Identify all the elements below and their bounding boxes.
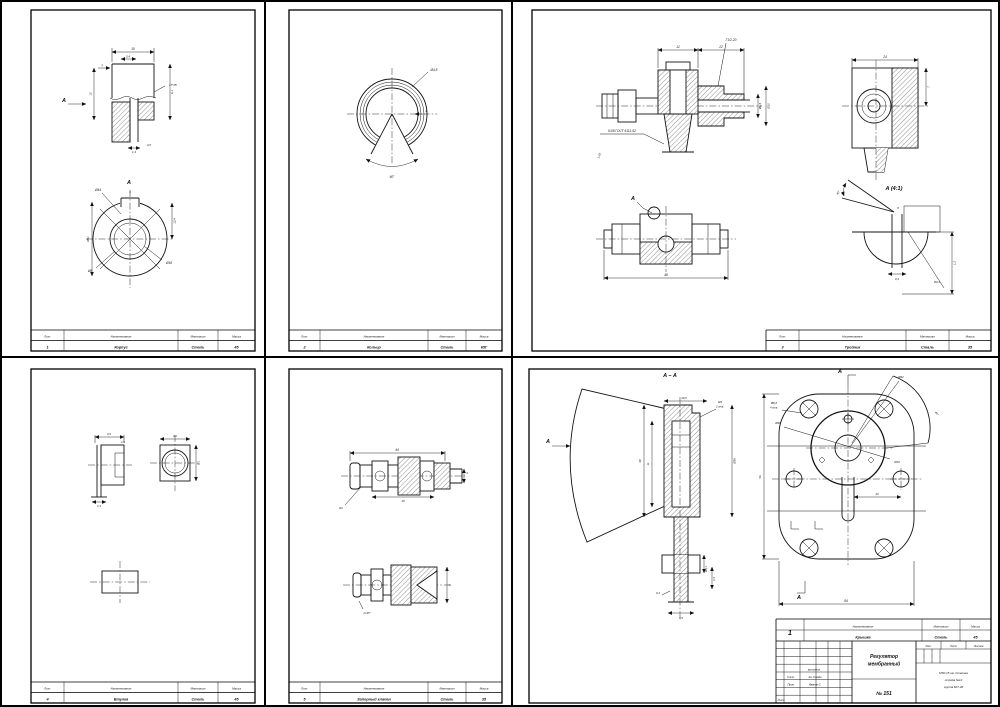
- tb-left-grid: выполнил Сост. Ан. Семён Пров. Иванов С.…: [776, 641, 852, 703]
- tb-header-name: Наименование: [853, 625, 874, 629]
- tb-cell-label: выполнил: [808, 669, 821, 672]
- tb-list-label: Лист: [777, 698, 786, 702]
- dim-label: Ø30: [774, 421, 781, 425]
- dim-label: 0,4: [656, 591, 660, 595]
- tb-header-pos: Лит.: [300, 686, 308, 690]
- tb-header-mass: Масса: [232, 334, 241, 338]
- sheet4-title-block: Лит. Наименование Материал Масса 4 Втулк…: [31, 682, 255, 703]
- dim-label: Ø18: [165, 261, 172, 265]
- tb-org-line2: отряда №12: [945, 678, 963, 682]
- sheet6-plate-view: 45° Ø6,6 4 отв. Ø32 Ø30 Ø10 56 84 23 A: [758, 369, 940, 606]
- section-arrow-label: A: [61, 98, 66, 104]
- tb-part-name: Тройник: [845, 346, 862, 350]
- tb-header-pos: Лит.: [300, 334, 308, 338]
- dim-label: 45°: [934, 411, 940, 417]
- dim-label: 48: [664, 273, 668, 277]
- section-label: A – A: [662, 373, 677, 379]
- tb-header-name: Наименование: [842, 334, 863, 338]
- sheet1-title-block: Лит. Наименование Материал Масса 1 Корпу…: [31, 330, 255, 351]
- dim-label: 24: [882, 55, 887, 59]
- sheet4-profile-view: 4,5 1,5 1,3: [88, 432, 132, 508]
- hole-count-label: 2 отв.: [715, 405, 724, 409]
- tb-mass: 65Г: [481, 346, 488, 350]
- sheet2-ring-view: 60° Ø4,5 3: [347, 68, 438, 179]
- thread-label: М3: [718, 400, 722, 404]
- sheet4-front-view: 3,2 8,1: [150, 434, 201, 491]
- tb-header-name: Наименование: [111, 686, 132, 690]
- sheet2-title-block: Лит. Наименование Материал Масса 2 Кольц…: [289, 330, 502, 351]
- dim-label: 3,2: [173, 434, 177, 438]
- dim-label: Ø4,5: [430, 68, 438, 72]
- dim-label: 1,25: [596, 152, 602, 159]
- sheet-4-vtulka: 4,5 1,5 1,3 3,2 8,1: [2, 357, 264, 707]
- sheet-2-koltso: 60° Ø4,5 3 Лит. Наименование Материал Ма…: [265, 2, 511, 356]
- tb-pos: 4: [45, 698, 49, 702]
- dim-label: 1×45°: [363, 611, 371, 615]
- dim-label: 8: [897, 206, 899, 210]
- dim-label: 7: [927, 86, 931, 88]
- dim-label: 4: [466, 471, 468, 475]
- dim-label: Ø10: [767, 103, 771, 110]
- tb-right-block: Лит. Лист Листов МТИ 15 им. Сталина отря…: [916, 641, 991, 689]
- tb-header-material: Материал: [920, 334, 935, 338]
- tb-org-line1: МТИ 15 им. Сталина: [939, 671, 968, 675]
- dim-label: 84: [844, 599, 848, 603]
- hole-callout: Ø6,6: [770, 401, 778, 405]
- dim-label: 12: [89, 92, 93, 96]
- dim-label: 6,1: [170, 90, 174, 94]
- dim-label: Ø6,4: [758, 103, 762, 111]
- tb-header-material: Материал: [439, 334, 454, 338]
- sheet4-bottom-view: [90, 561, 150, 603]
- section-arrow-label: A: [837, 369, 842, 375]
- sheet-6-regulator: A – A A 10,5 М3 2 отв. Ø3: [512, 357, 1000, 707]
- tb-part-name: Втулка: [114, 698, 129, 702]
- tb-part-name: Кольцо: [367, 346, 381, 350]
- dim-label: Ø44: [94, 188, 101, 192]
- tb-mass: 35: [968, 346, 973, 350]
- tb-role-label: Пров.: [787, 683, 794, 687]
- tb-header-mass: Масса: [971, 625, 980, 629]
- tb-header-name: Наименование: [111, 334, 132, 338]
- dim-label: 12: [676, 45, 680, 49]
- tb-header-pos: Лит.: [43, 334, 51, 338]
- tb-part-name: Запорный клапан: [357, 698, 391, 702]
- dim-label: Ø8: [87, 269, 92, 273]
- tb-material: Сталь: [192, 698, 206, 702]
- sheet3-title-block: Лит. Наименование Материал Масса 3 Тройн…: [766, 330, 991, 351]
- corner-hole: [800, 400, 818, 418]
- dim-label: 8,1: [197, 461, 201, 465]
- dim-label: 12,4: [173, 218, 177, 224]
- tb-material: Сталь: [935, 636, 949, 640]
- thread-label: Г1/2-20: [726, 38, 737, 42]
- dim-label: 1,2: [953, 261, 957, 265]
- tb-sheet-label: Лист: [949, 644, 958, 648]
- tb-material: Сталь: [921, 346, 935, 350]
- tb-material: Сталь: [441, 698, 455, 702]
- sheet-1-korpus: 10 5,4 1 1,3 4,5 17°45' 6,1 12: [2, 2, 264, 356]
- dim-label: 22: [718, 45, 723, 49]
- drawing-title-line2: мембранный: [868, 661, 900, 668]
- tb-header-name: Наименование: [364, 334, 385, 338]
- sheet-5-klapan: 44 4 18 R2: [265, 357, 511, 707]
- tb-part-name: Крышка: [855, 636, 870, 640]
- dim-label: Ø10: [893, 460, 900, 464]
- dim-label: Ø38: [733, 458, 737, 465]
- dim-label: 1,3: [97, 504, 101, 508]
- sheet1-top-view: 10 5,4 1 1,3 4,5 17°45' 6,1 12: [61, 47, 177, 154]
- dim-label: 6: [448, 584, 452, 586]
- view-label: A: [126, 180, 131, 186]
- dim-label: R2: [339, 506, 343, 510]
- tb-mass: 45: [972, 636, 978, 640]
- tb-pos: 1: [788, 630, 792, 637]
- dim-label: 40°: [835, 189, 841, 195]
- sheet1-bottom-view: A 4 Ø44 Ø8 Ø18 Ø51 12,4: [86, 180, 177, 288]
- dim-label: 10,5: [681, 396, 687, 400]
- drawing-number: № 151: [876, 691, 892, 697]
- dim-label: 17°45': [169, 83, 177, 87]
- tb-pos: 1: [46, 346, 48, 350]
- tb-title-cell: Регулятор мембранный № 151: [852, 654, 916, 697]
- dim-label: 1,5: [121, 440, 125, 444]
- sheet6-main-title-block: 1 Наименование Материал Масса Крышка Ста…: [776, 619, 991, 703]
- tb-pos: 2: [302, 346, 306, 350]
- sheet-3-troynik: 12 22 Г1/2-20 Ø6,4 Ø10 К1/8 ГОСТ 6111-52…: [512, 2, 1000, 356]
- tb-lit-label: Лит.: [924, 644, 932, 648]
- dim-label: R0,4: [934, 280, 940, 284]
- tb-header-material: Материал: [439, 686, 454, 690]
- dim-label: 10: [131, 47, 135, 51]
- dim-label: 4,5: [147, 143, 151, 147]
- sheet5-title-block: Лит. Наименование Материал Масса 5 Запор…: [289, 682, 502, 703]
- tb-mass: 45: [233, 346, 239, 350]
- view-label: A: [630, 196, 635, 202]
- tb-pos: 5: [303, 698, 306, 702]
- dim-label: 1,3: [132, 150, 136, 154]
- detail-label: A (4:1): [885, 186, 903, 192]
- corner-hole: [875, 400, 893, 418]
- tb-header-mass: Масса: [480, 686, 489, 690]
- tb-sheets-label: Листов: [973, 644, 984, 648]
- tb-mass: 45: [233, 698, 239, 702]
- dim-label: 5,4: [126, 55, 130, 59]
- tb-role-name: Иванов С.: [809, 683, 822, 687]
- tb-material: Сталь: [192, 346, 206, 350]
- tb-header-material: Материал: [190, 686, 205, 690]
- dim-label: 0,4: [895, 277, 899, 281]
- dim-label: Ø3,1: [704, 566, 708, 573]
- dim-label: 4,5: [107, 432, 111, 436]
- tb-header-material: Материал: [933, 625, 948, 629]
- sheet5-spool-bottom-view: 6 1×45°: [343, 565, 452, 615]
- sheet3-side-view: 24 7: [842, 55, 931, 180]
- dim-label: 44: [395, 448, 399, 452]
- tb-part-name: Корпус: [114, 346, 128, 350]
- dim-label: Ø32: [897, 375, 904, 379]
- tb-role-label: Сост.: [787, 675, 795, 679]
- thread-note: К1/8 ГОСТ 6111-52: [608, 129, 636, 133]
- tb-header-mass: Масса: [480, 334, 489, 338]
- dim-label: Ø51: [86, 236, 90, 243]
- section-arrow-label: A: [796, 595, 801, 601]
- dim-label: 60°: [390, 175, 396, 179]
- sheet5-spool-top-view: 44 4 18 R2: [339, 448, 468, 510]
- corner-hole: [875, 539, 893, 557]
- dim-label: 23: [874, 492, 879, 496]
- sheet3-plan-view: A 48: [596, 196, 736, 280]
- dim-label: 56: [758, 475, 762, 479]
- corner-hole: [800, 539, 818, 557]
- dim-label: 11: [646, 462, 650, 465]
- dim-label: 18: [401, 499, 405, 503]
- tb-material: Сталь: [441, 346, 455, 350]
- tb-header-mass: Масса: [232, 686, 241, 690]
- sheet3-section-view: 12 22 Г1/2-20 Ø6,4 Ø10 К1/8 ГОСТ 6111-52…: [596, 38, 771, 159]
- tb-pos: 3: [781, 346, 784, 350]
- tb-header-material: Материал: [190, 334, 205, 338]
- dim-label: 38: [638, 459, 642, 463]
- tb-role-name: Ан. Семён: [808, 675, 823, 679]
- sheet3-detail-view: A (4:1) 0,4 40° 8 R0,4 1,2: [835, 180, 956, 294]
- tb-header-mass: Масса: [966, 334, 975, 338]
- tb-header-name: Наименование: [364, 686, 385, 690]
- tb-mass: 35: [482, 698, 487, 702]
- dim-label: 1: [101, 63, 103, 67]
- dim-label: 1,4: [712, 577, 716, 581]
- hole-count-label: 4 отв.: [770, 406, 778, 410]
- dim-label: 3,5: [679, 616, 683, 620]
- tb-header-pos: Лит.: [43, 686, 51, 690]
- drawing-title-line1: Регулятор: [870, 654, 898, 660]
- tb-header-pos: Лит.: [778, 334, 786, 338]
- section-arrow-label: A: [545, 439, 550, 445]
- sheet6-section-aa-view: A – A A 10,5 М3 2 отв. Ø3: [545, 373, 736, 620]
- tb-org-line3: группа 62Т-4б: [944, 685, 964, 689]
- drawing-set-canvas: 10 5,4 1 1,3 4,5 17°45' 6,1 12: [0, 0, 1000, 707]
